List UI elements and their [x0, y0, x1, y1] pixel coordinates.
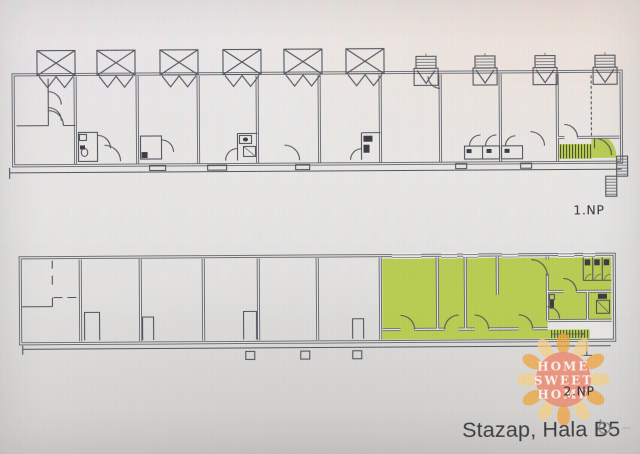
roof-gable-icons — [37, 49, 384, 88]
watermark-line1: HOME — [537, 359, 589, 373]
roof-gable-icon — [160, 50, 198, 87]
plan1-label: 1.NP — [573, 202, 604, 217]
roof-gable-icon — [37, 50, 75, 87]
home-sweet-home-logo: HOME SWEET HOME — [517, 333, 611, 427]
screenshot-root: HOME SWEET HOME 1.NP 2.NP Stazap, Hala B… — [0, 0, 640, 454]
floorplan-2np — [20, 252, 615, 361]
floorplan-1np — [9, 47, 628, 200]
roof-gable-icon — [284, 49, 322, 86]
unit-partition-walls-1np — [75, 73, 620, 164]
roof-gable-icon — [223, 49, 261, 86]
roof-vent-icon — [473, 53, 497, 85]
floorplan-photo: HOME SWEET HOME 1.NP 2.NP Stazap, Hala B… — [0, 0, 640, 454]
left-room-partitions-2np — [21, 259, 363, 341]
roof-vent-icons — [414, 52, 617, 85]
listing-caption: Stazap, Hala B5 — [462, 417, 630, 442]
roof-vent-icon — [593, 52, 617, 84]
listing-title: Stazap, Hala B5 — [462, 417, 621, 442]
plan2-label: 2.NP — [563, 383, 594, 398]
roof-vent-icon — [533, 53, 557, 85]
roof-vent-icon — [414, 53, 438, 85]
roof-gable-icon — [97, 50, 135, 87]
exterior-walls-1np — [13, 71, 622, 166]
roof-gable-icon — [346, 49, 384, 86]
highlighted-staircase-1np — [559, 138, 616, 159]
interior-details-1np — [16, 75, 591, 162]
unit-partition-walls-2np — [80, 258, 380, 342]
